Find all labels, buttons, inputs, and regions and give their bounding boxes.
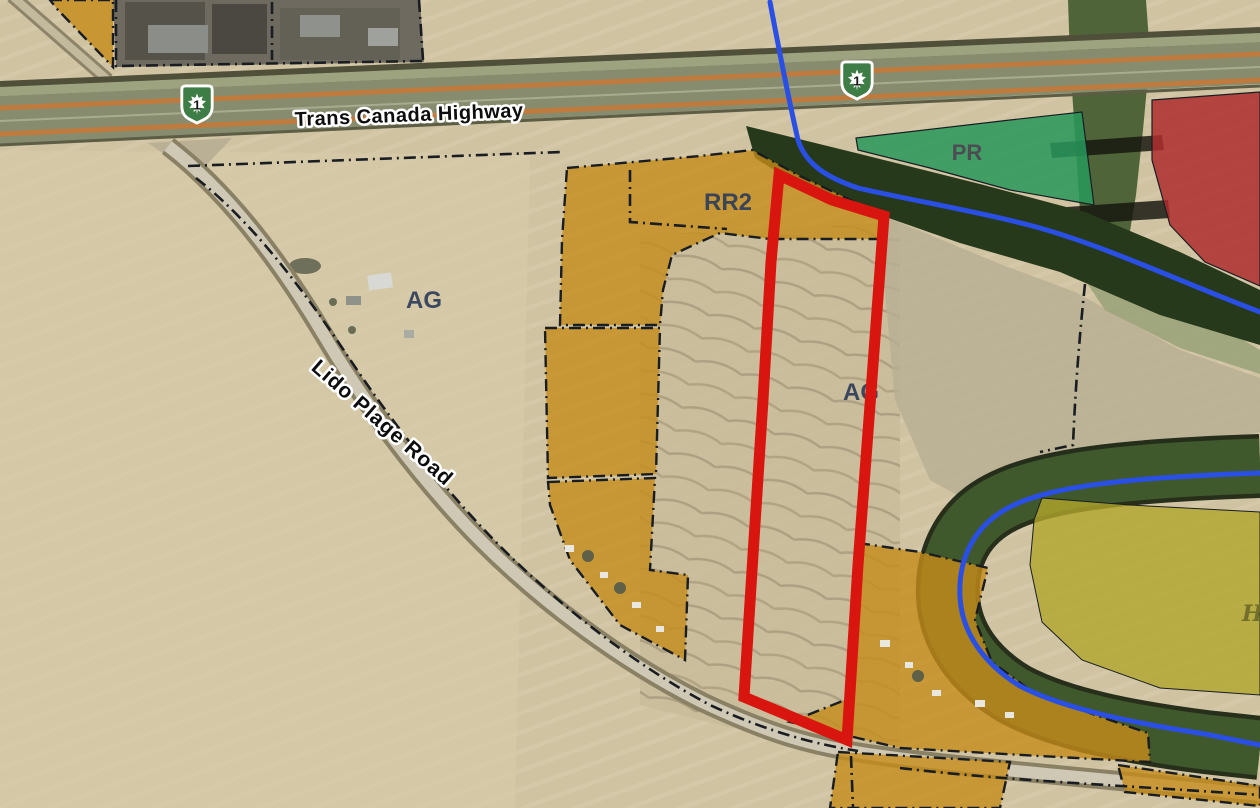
shield-route-number: 1 [853,74,861,89]
zone-label-rr2: RR2 [704,189,752,216]
zone-orange-overlay-column[interactable] [545,328,660,478]
zone-orange-overlay-south[interactable] [830,752,1010,808]
shield-route-number: 1 [193,98,201,113]
trans-canada-route-shield-icon: 1 [842,62,872,99]
zone-label-pr: PR [952,140,983,165]
zone-label-ag: AG [406,287,442,314]
zoning-map-viewport[interactable]: AG RR2 PR AG H Trans Canada Highway Lido… [0,0,1260,808]
map-canvas[interactable]: AG RR2 PR AG H Trans Canada Highway Lido… [0,0,1260,808]
zone-label-h-partial: H [1241,601,1260,627]
trans-canada-route-shield-icon: 1 [182,86,212,123]
